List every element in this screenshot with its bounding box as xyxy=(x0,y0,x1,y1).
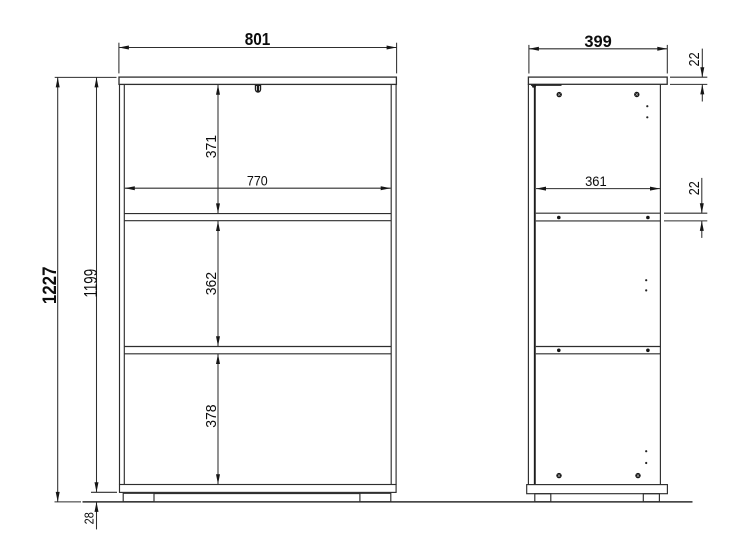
svg-text:361: 361 xyxy=(585,173,607,189)
svg-text:1199: 1199 xyxy=(81,269,101,298)
svg-text:770: 770 xyxy=(247,173,268,188)
svg-text:399: 399 xyxy=(584,32,611,51)
svg-text:22: 22 xyxy=(687,181,703,195)
svg-text:801: 801 xyxy=(245,29,271,49)
svg-text:371: 371 xyxy=(203,135,220,158)
svg-text:378: 378 xyxy=(203,404,220,427)
svg-text:362: 362 xyxy=(203,272,220,295)
svg-text:1227: 1227 xyxy=(40,267,61,305)
svg-text:28: 28 xyxy=(82,512,97,524)
svg-text:22: 22 xyxy=(687,52,703,66)
